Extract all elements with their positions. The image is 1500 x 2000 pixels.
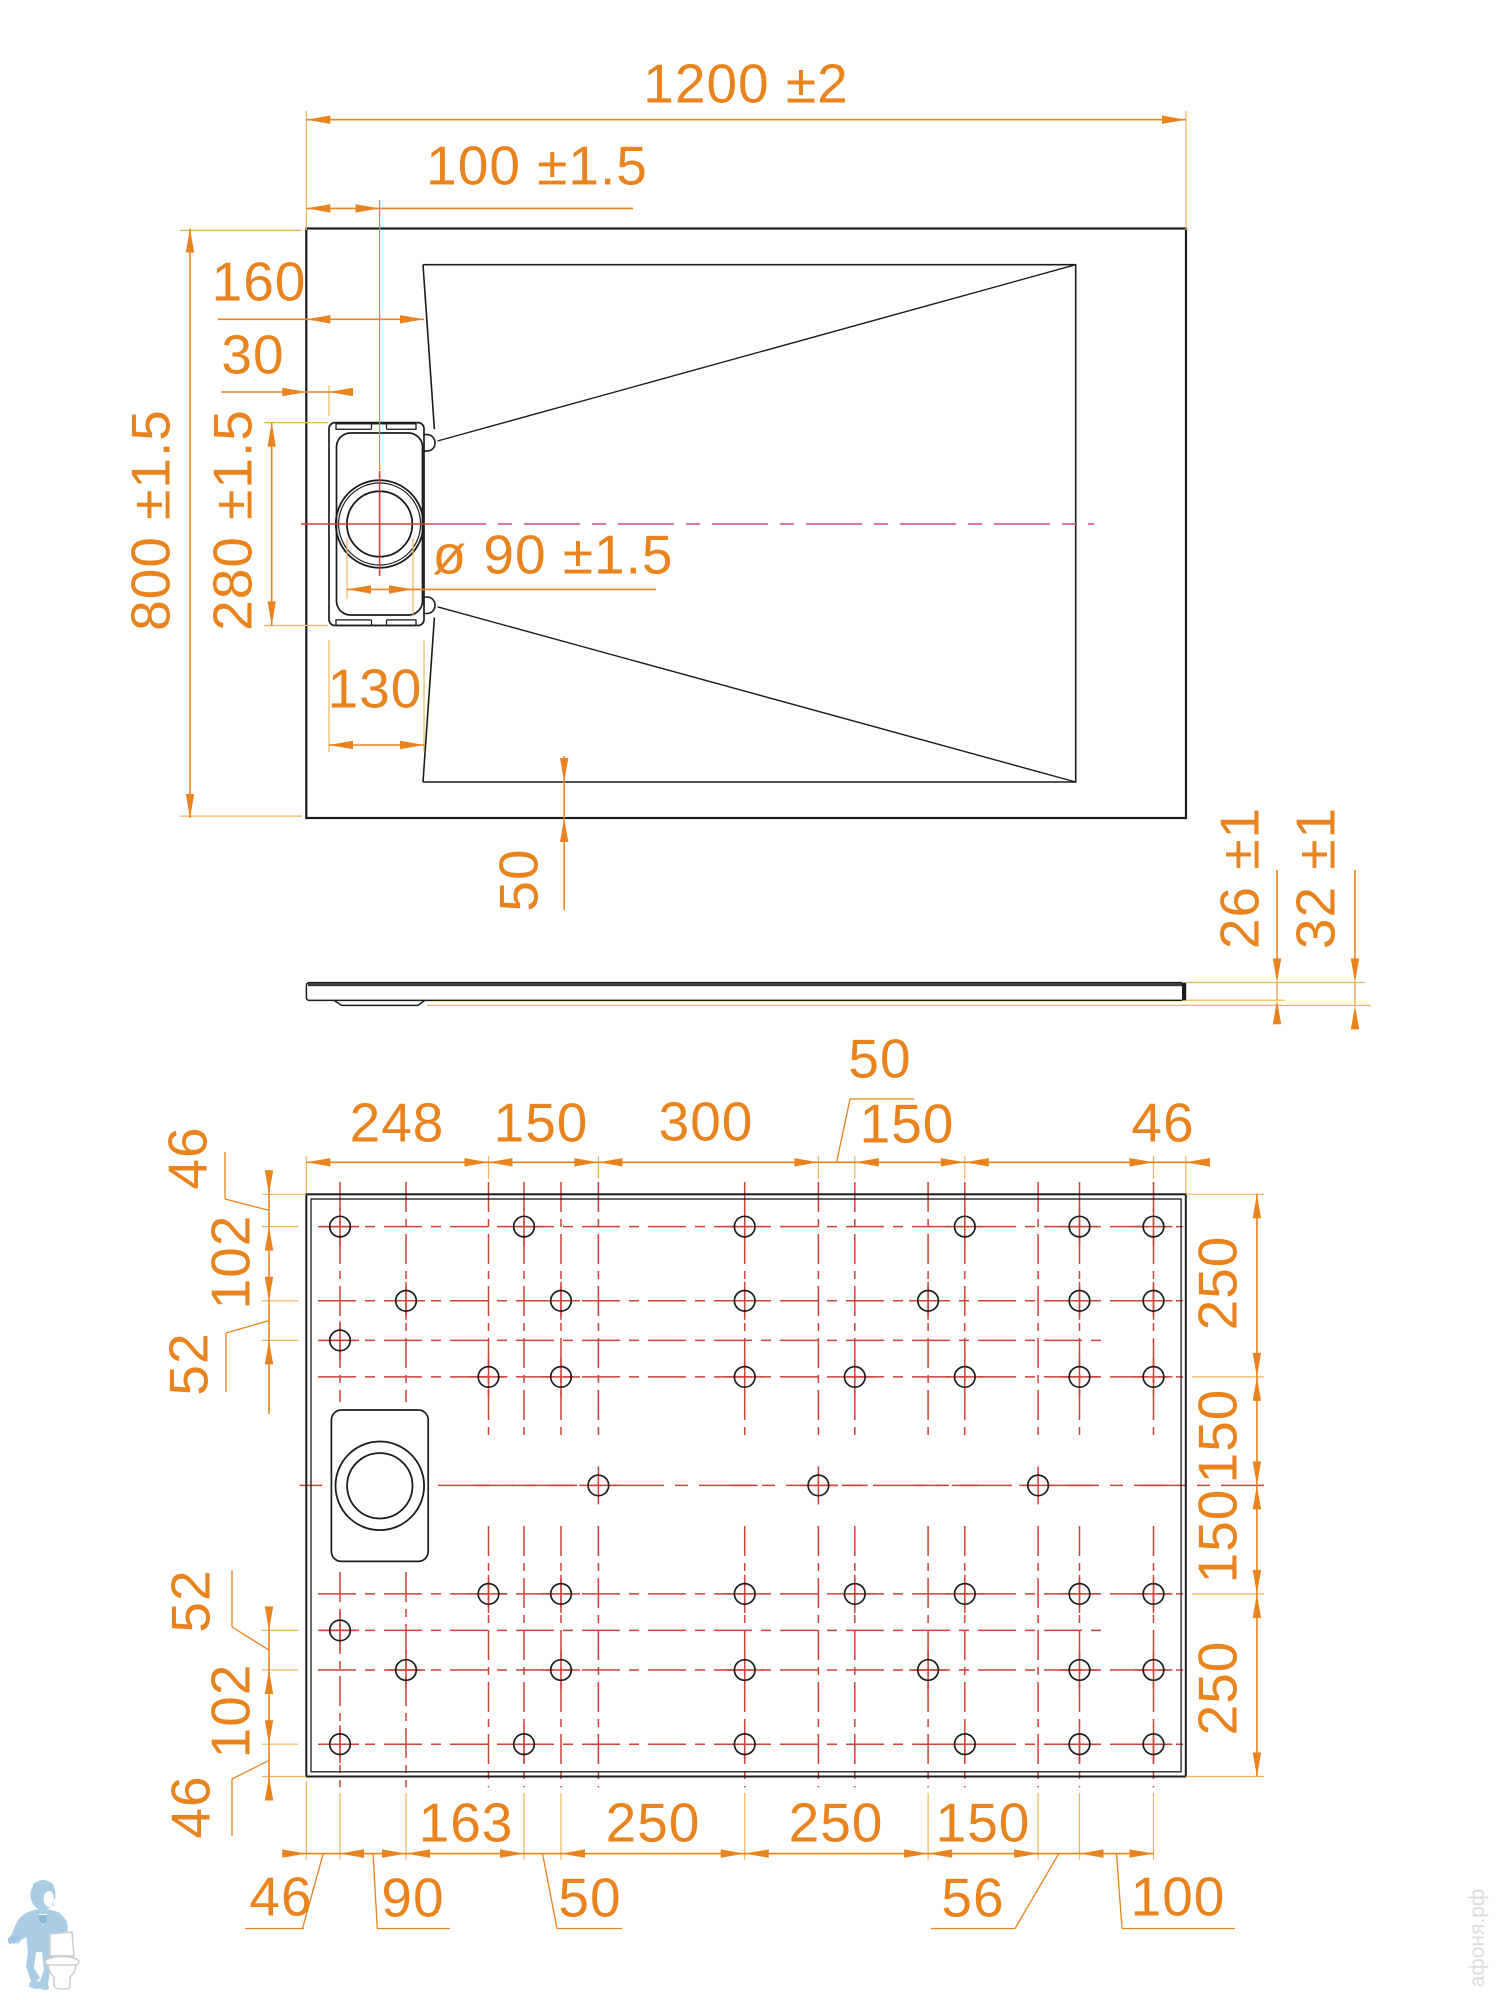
svg-text:250: 250: [606, 1792, 701, 1854]
svg-text:52: 52: [158, 1332, 220, 1395]
svg-text:150: 150: [1187, 1489, 1249, 1584]
svg-text:30: 30: [221, 324, 284, 386]
svg-text:50: 50: [488, 848, 550, 911]
svg-text:56: 56: [941, 1867, 1004, 1929]
svg-text:150: 150: [494, 1092, 589, 1154]
svg-text:150: 150: [936, 1792, 1031, 1854]
svg-text:150: 150: [860, 1093, 955, 1155]
svg-text:26 ±1: 26 ±1: [1209, 807, 1271, 949]
svg-text:250: 250: [1187, 1236, 1249, 1331]
svg-text:32 ±1: 32 ±1: [1285, 807, 1347, 949]
svg-text:248: 248: [350, 1092, 445, 1154]
svg-text:102: 102: [200, 1215, 262, 1310]
svg-text:46: 46: [157, 1126, 219, 1189]
svg-text:130: 130: [328, 658, 423, 720]
svg-text:102: 102: [200, 1664, 262, 1759]
svg-text:90: 90: [381, 1867, 444, 1929]
svg-text:ø 90 ±1.5: ø 90 ±1.5: [433, 524, 674, 586]
svg-text:50: 50: [558, 1867, 621, 1929]
svg-text:100 ±1.5: 100 ±1.5: [426, 135, 648, 197]
svg-text:150: 150: [1187, 1389, 1249, 1484]
svg-text:280 ±1.5: 280 ±1.5: [202, 409, 264, 631]
svg-text:46: 46: [160, 1775, 222, 1838]
svg-text:52: 52: [160, 1569, 222, 1632]
svg-text:46: 46: [249, 1866, 312, 1928]
svg-text:250: 250: [1187, 1641, 1249, 1736]
svg-text:100: 100: [1131, 1866, 1226, 1928]
svg-text:50: 50: [848, 1028, 911, 1090]
svg-text:афоня.рф: афоня.рф: [1466, 1889, 1489, 1987]
svg-text:1200 ±2: 1200 ±2: [643, 53, 848, 115]
svg-text:300: 300: [659, 1091, 754, 1153]
svg-text:160: 160: [212, 251, 307, 313]
svg-text:163: 163: [419, 1792, 514, 1854]
svg-text:46: 46: [1131, 1092, 1194, 1154]
svg-text:250: 250: [789, 1792, 884, 1854]
svg-text:800 ±1.5: 800 ±1.5: [120, 409, 182, 631]
